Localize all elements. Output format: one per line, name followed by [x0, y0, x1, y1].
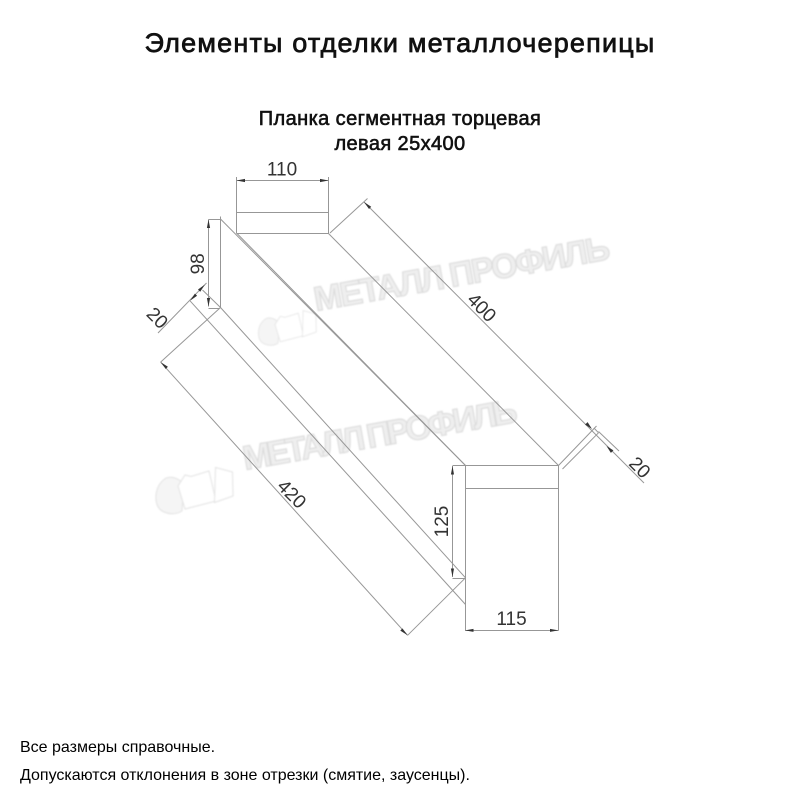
svg-text:115: 115: [496, 609, 526, 630]
svg-text:125: 125: [432, 506, 453, 538]
svg-text:МЕТАЛЛ ПРОФИЛЬ: МЕТАЛЛ ПРОФИЛЬ: [311, 229, 613, 319]
svg-text:20: 20: [142, 304, 172, 334]
svg-text:420: 420: [273, 476, 310, 513]
svg-text:110: 110: [267, 160, 297, 181]
svg-text:400: 400: [463, 289, 500, 326]
svg-text:98: 98: [188, 253, 209, 274]
svg-text:20: 20: [624, 453, 654, 483]
